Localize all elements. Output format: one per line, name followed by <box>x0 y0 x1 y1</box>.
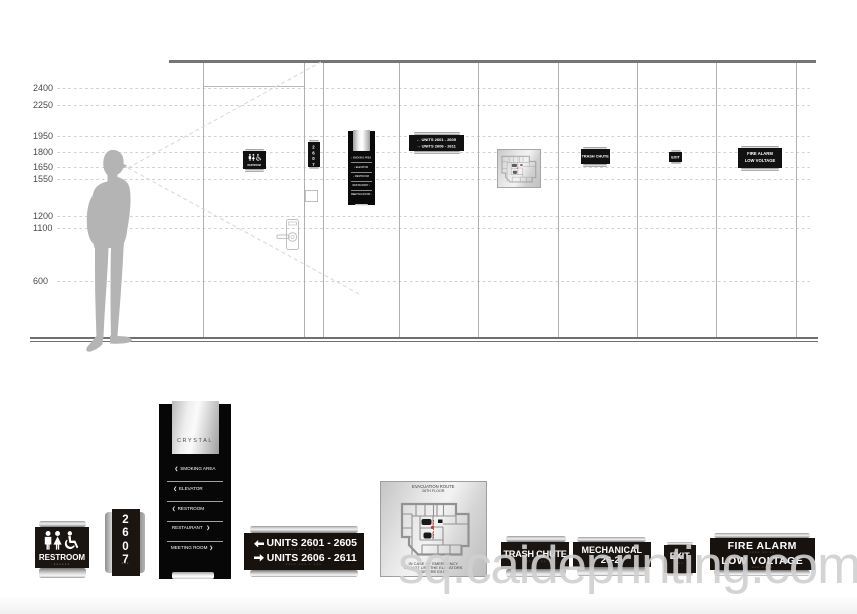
svg-text:RESTROOM: RESTROOM <box>248 165 261 167</box>
svg-text:LOW VOLTAGE: LOW VOLTAGE <box>745 158 776 163</box>
svg-text:EXIT: EXIT <box>671 155 680 159</box>
svg-text:← UNITS 2601 - 2605: ← UNITS 2601 - 2605 <box>416 137 456 142</box>
svg-text:TRASH CHUTE: TRASH CHUTE <box>582 155 610 159</box>
svg-text:2: 2 <box>312 145 315 150</box>
svg-text:RESTAURANT ›: RESTAURANT › <box>352 184 370 187</box>
svg-text:MEETING ROOM ›: MEETING ROOM › <box>351 193 372 196</box>
svg-text:→ UNITS 2606 - 2611: → UNITS 2606 - 2611 <box>417 144 457 149</box>
svg-text:FIRE ALARM: FIRE ALARM <box>747 151 773 156</box>
svg-text:‹ SMOKING AREA: ‹ SMOKING AREA <box>351 157 371 160</box>
svg-text:7: 7 <box>312 162 315 167</box>
svg-text:6: 6 <box>312 150 315 155</box>
svg-text:‹ RESTROOM: ‹ RESTROOM <box>354 175 369 178</box>
svg-text:‹ ELEVATOR: ‹ ELEVATOR <box>354 166 368 169</box>
svg-text:0: 0 <box>312 156 315 161</box>
